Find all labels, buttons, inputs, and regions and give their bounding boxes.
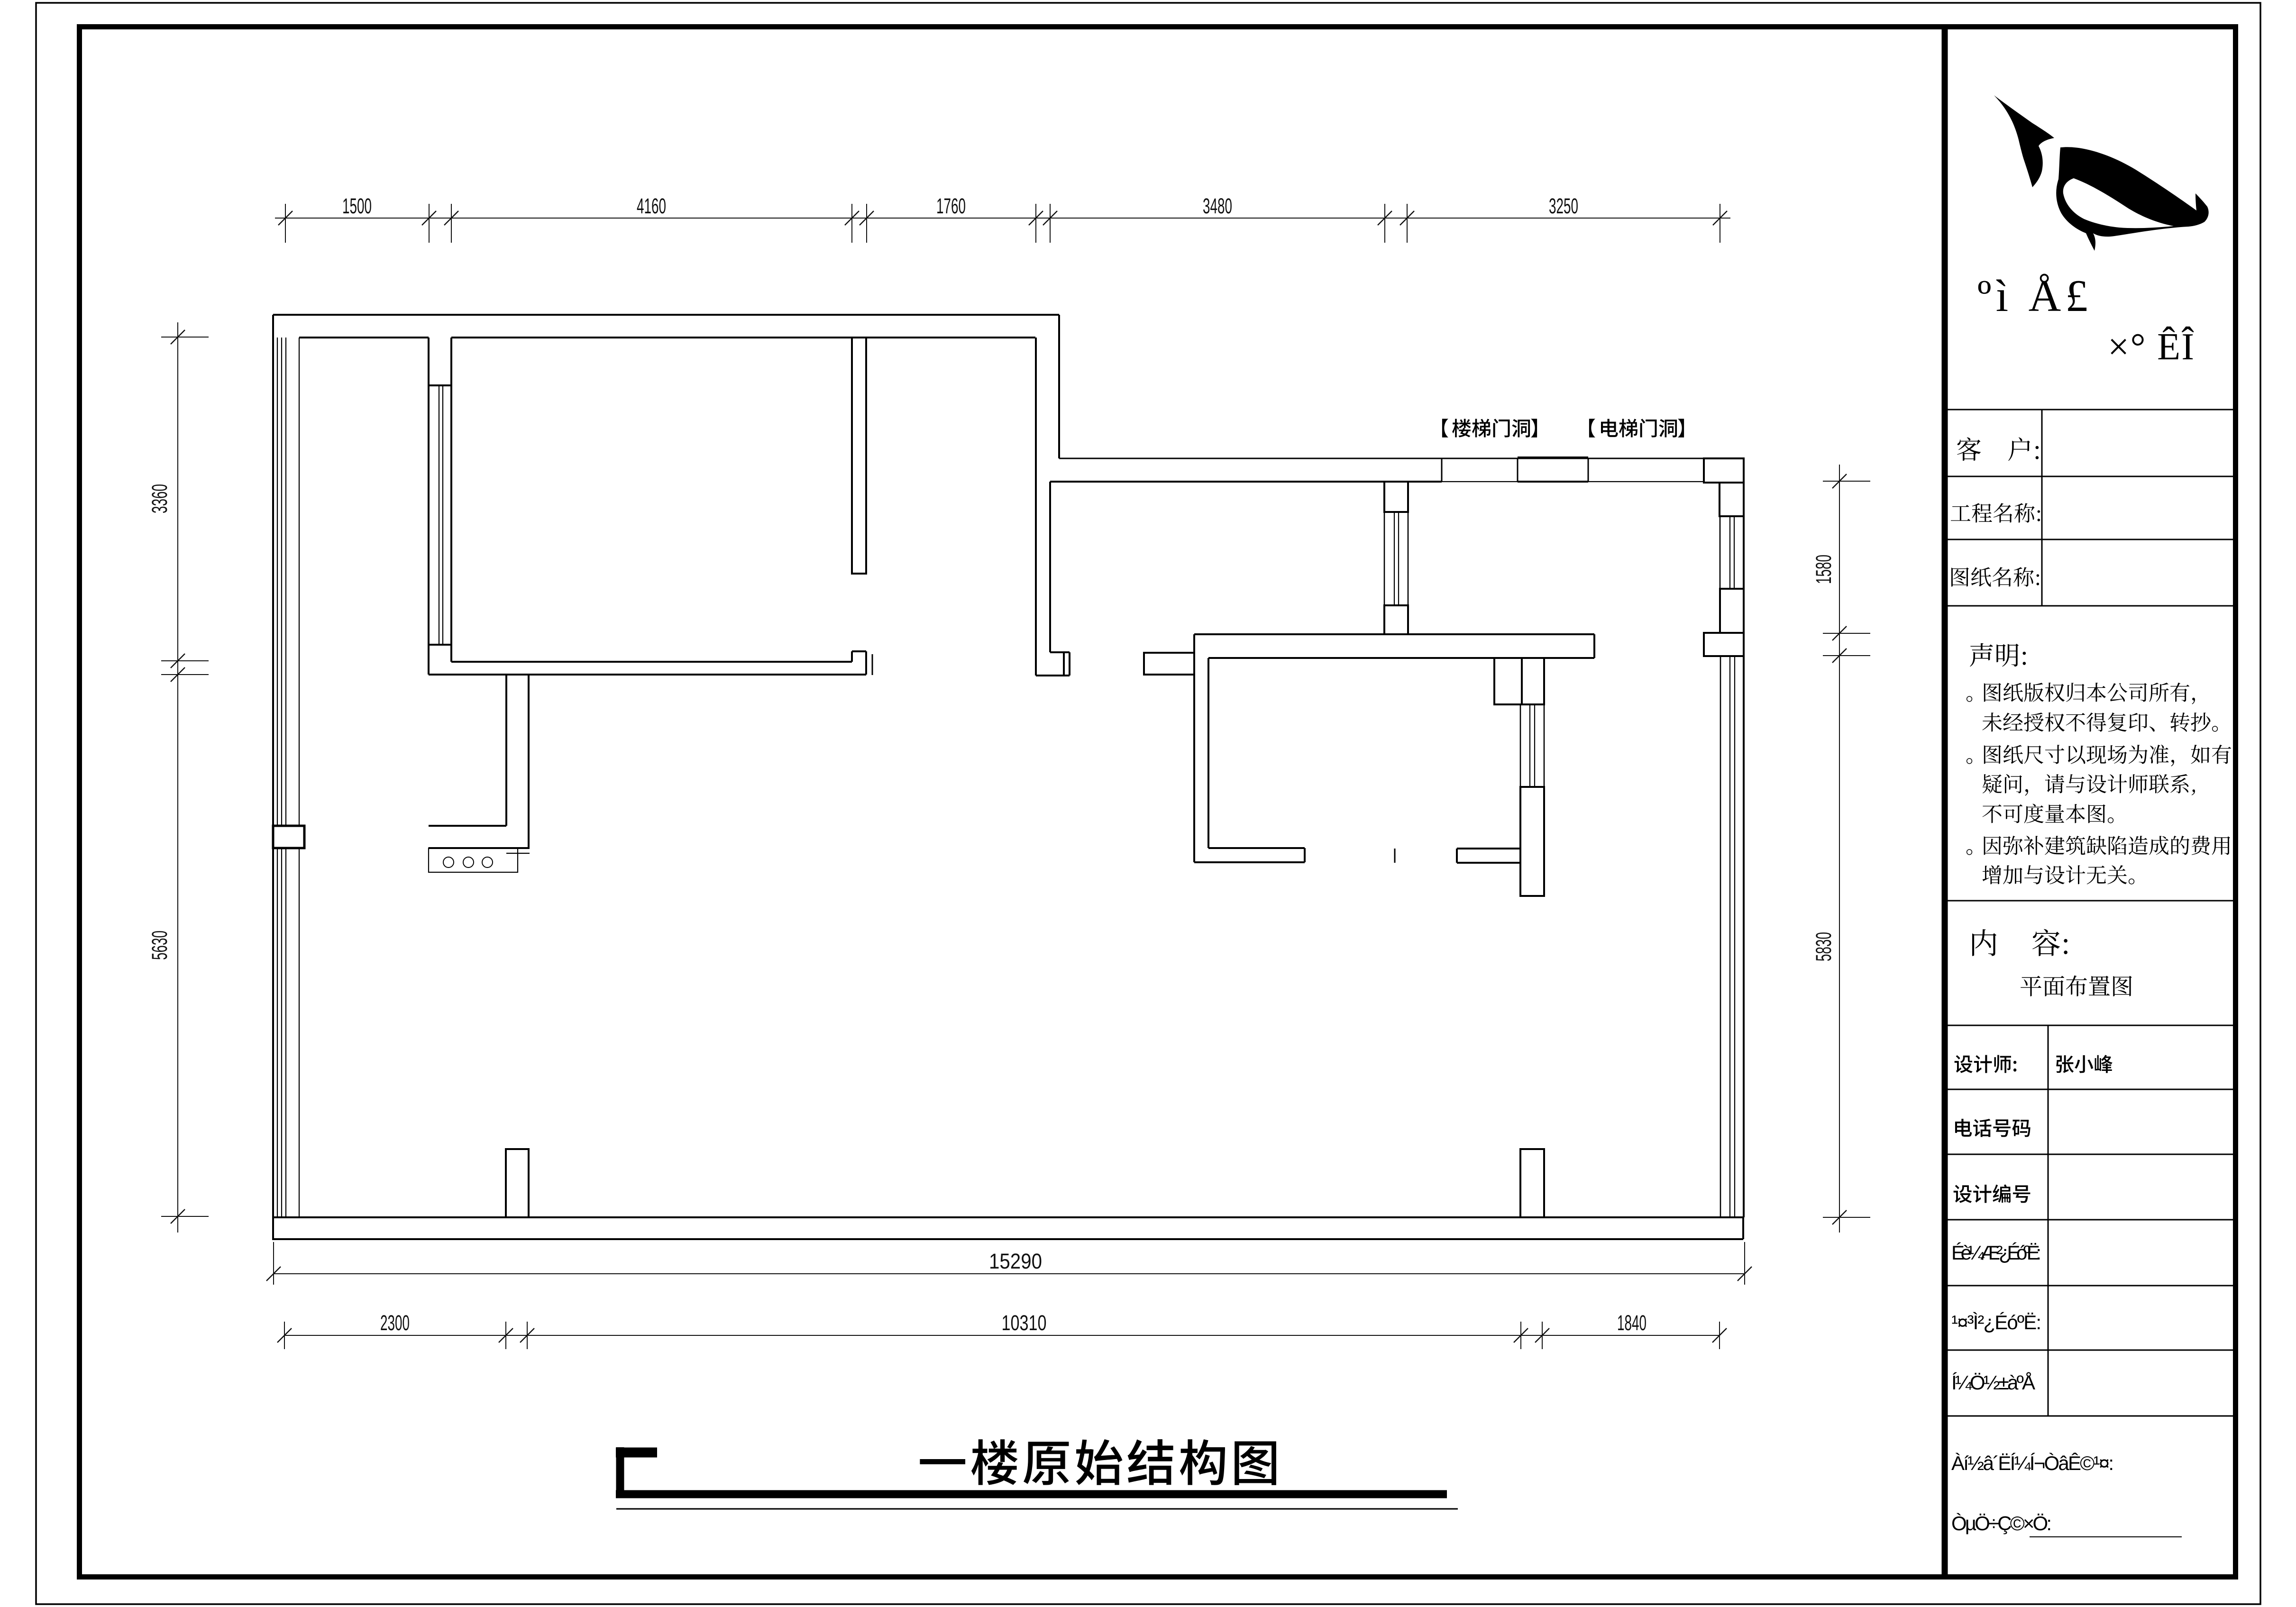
svg-text:3480: 3480: [1203, 194, 1232, 218]
svg-text:¹¤³Ì²¿ÉóºË:: ¹¤³Ì²¿ÉóºË:: [1951, 1311, 2041, 1333]
svg-text:5630: 5630: [147, 931, 172, 960]
svg-text:1840: 1840: [1617, 1311, 1647, 1335]
svg-text:1500: 1500: [342, 194, 372, 218]
svg-text:ÒµÖ÷Ç©×Ö:: ÒµÖ÷Ç©×Ö:: [1951, 1512, 2052, 1534]
svg-text:2300: 2300: [380, 1311, 410, 1335]
svg-text:Í¼Ö½±àºÅ: Í¼Ö½±àºÅ: [1951, 1371, 2035, 1394]
svg-text:3250: 3250: [1549, 194, 1578, 218]
svg-text:10310: 10310: [1002, 1311, 1047, 1335]
svg-text:5830: 5830: [1811, 932, 1836, 961]
svg-text:Àí½â´ËÍ¼Í¬ÒâÊ©¹¤:: Àí½â´ËÍ¼Í¬ÒâÊ©¹¤:: [1951, 1452, 2114, 1474]
svg-text:1760: 1760: [936, 194, 966, 218]
svg-text:×° ÊÎ: ×° ÊÎ: [2108, 326, 2194, 368]
svg-text:3360: 3360: [147, 484, 172, 513]
svg-text:4160: 4160: [637, 194, 666, 218]
svg-text:15290: 15290: [989, 1249, 1042, 1273]
svg-text:1580: 1580: [1811, 555, 1836, 584]
svg-text:Éè¼Æ²¿ÉóºË:: Éè¼Æ²¿ÉóºË:: [1951, 1242, 2041, 1264]
